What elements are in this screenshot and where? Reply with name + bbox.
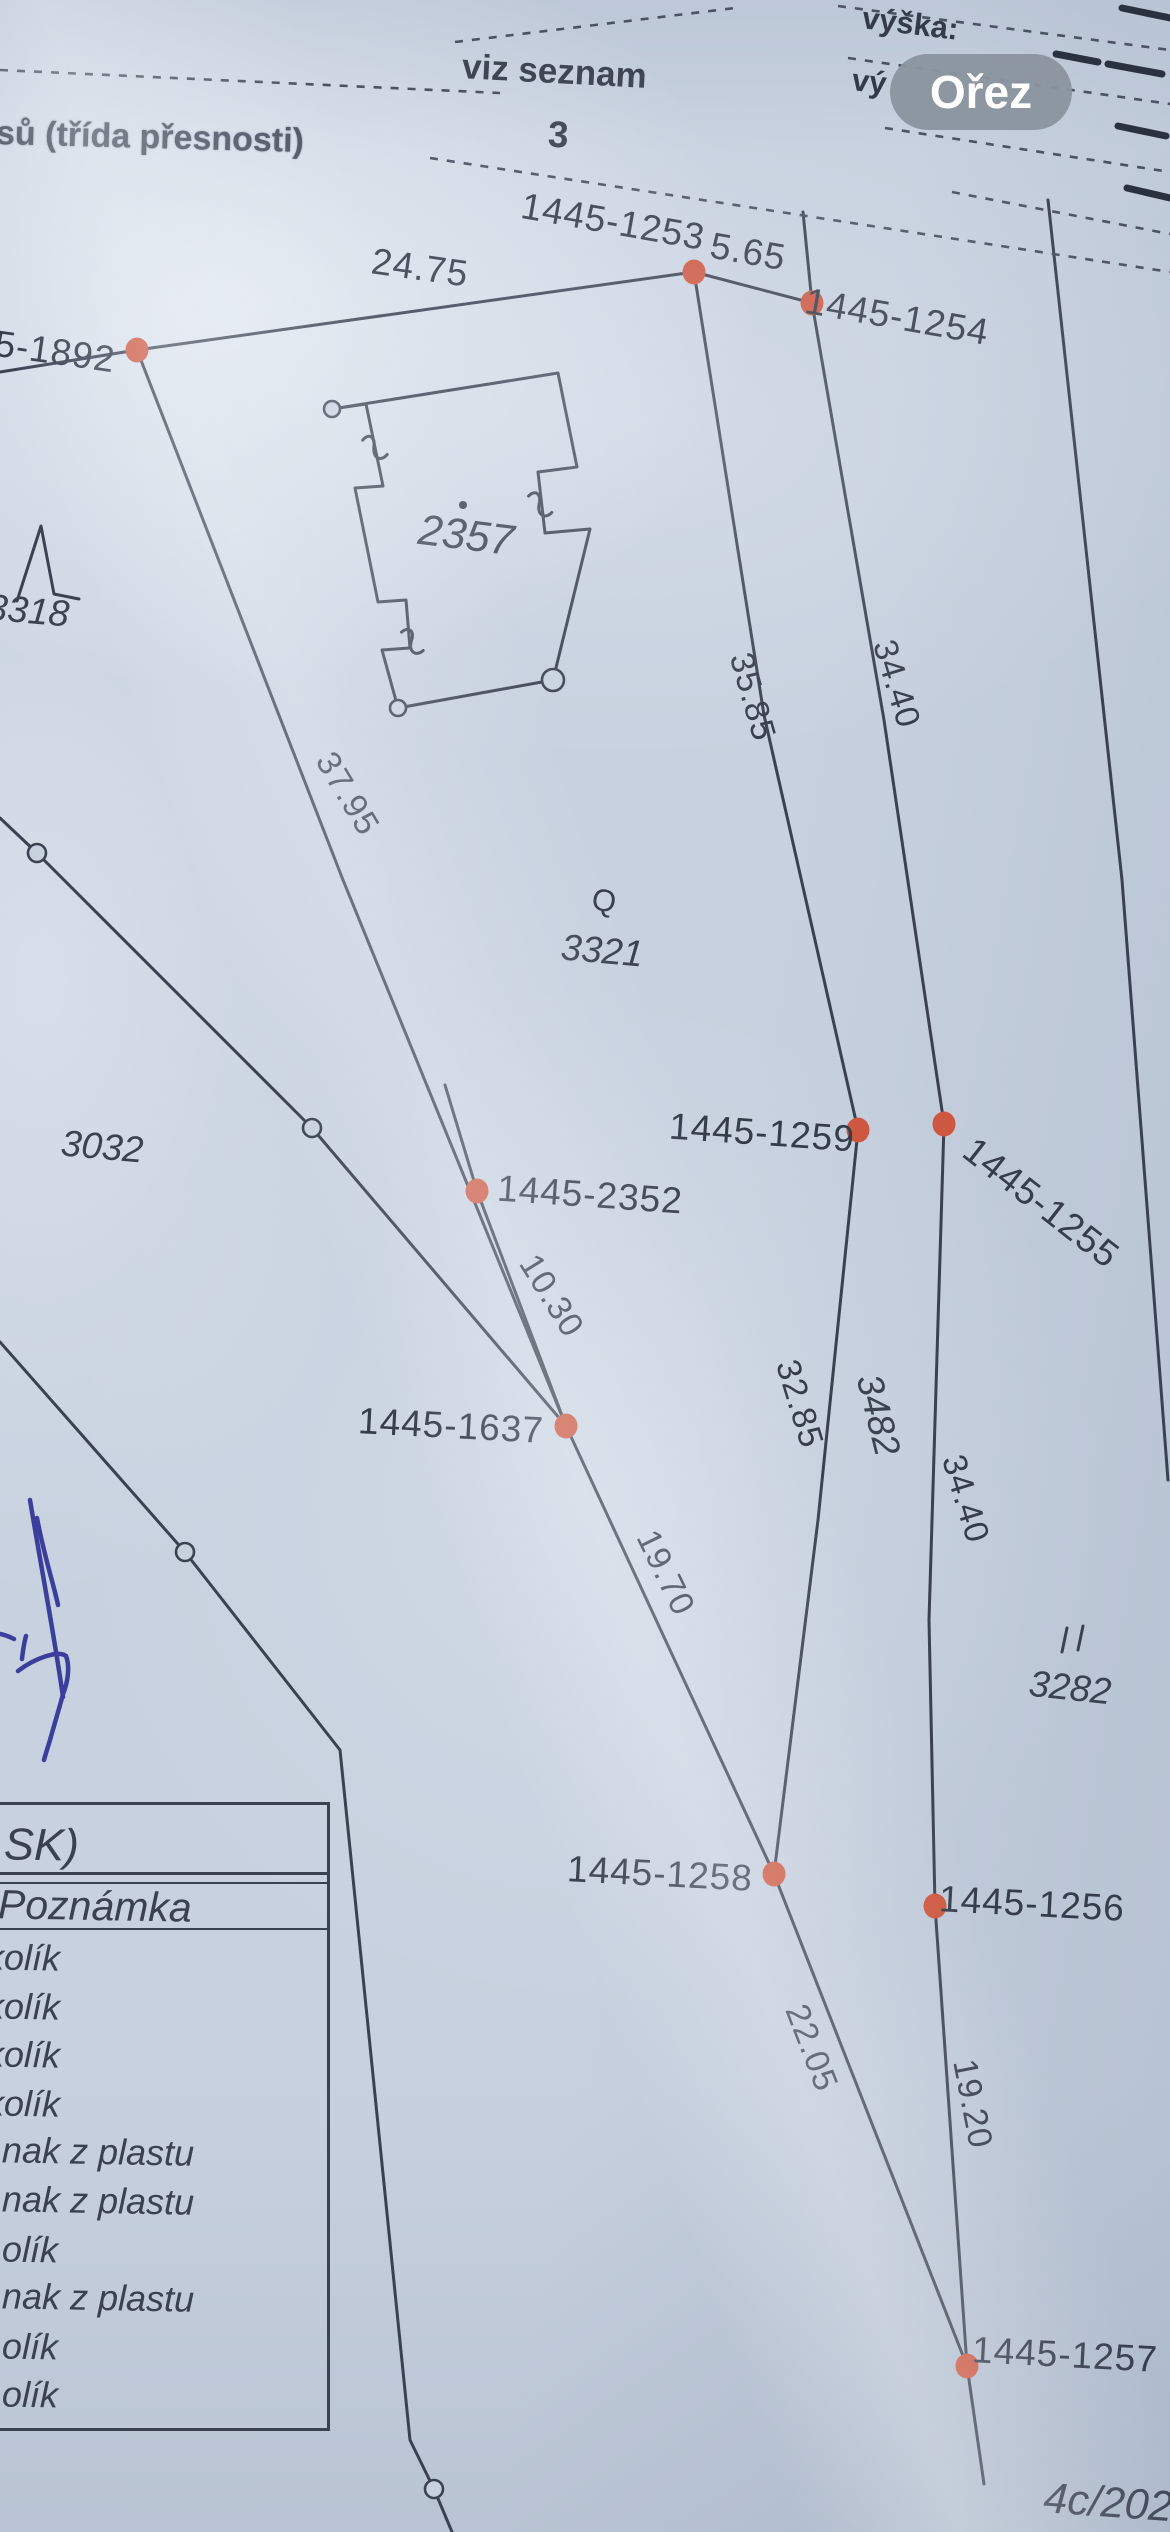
map-label: 1445-1257 <box>971 2329 1159 2381</box>
map-label: 5-1892 <box>0 323 118 381</box>
map-label: 37.95 <box>307 745 387 842</box>
list-number-text: 3 <box>547 113 570 156</box>
map-label: 3032 <box>59 1122 145 1171</box>
map-label: 24.75 <box>369 240 471 295</box>
map-label: 3282 <box>1027 1663 1113 1713</box>
table-row: nak z plastu <box>2 2276 195 2321</box>
map-label: 4c/2024 <box>1042 2474 1170 2532</box>
map-label: 1445-1253 <box>518 185 708 259</box>
map-label: 3318 <box>0 586 71 635</box>
photo-viewer-screen: 1445-12535.651445-12545-189224.751445-12… <box>0 0 1170 2532</box>
table-rule <box>0 1872 327 1875</box>
table-row: kolík <box>0 1985 60 2028</box>
legend-table: SK) Poznámka kolíkkolíkkolíkkolíknak z p… <box>0 1802 330 2431</box>
map-label: 19.70 <box>628 1524 703 1622</box>
map-label: 34.40 <box>933 1450 997 1548</box>
map-label: 22.05 <box>777 1999 846 2097</box>
map-label: 1445-1254 <box>802 280 992 354</box>
map-label: 1445-1258 <box>566 1848 754 1900</box>
table-row: olík <box>2 2374 59 2417</box>
map-label: 32.85 <box>767 1355 831 1453</box>
map-label: 19.20 <box>944 2056 999 2152</box>
table-row: olík <box>2 2228 59 2271</box>
height-label-partial-text: vý <box>850 62 889 102</box>
accuracy-note-text: sů (třída přesnosti) <box>0 114 304 161</box>
table-row: kolík <box>0 1936 60 1979</box>
table-row: kolík <box>0 2034 60 2077</box>
map-label: 3321 <box>559 926 645 975</box>
map-label: 1445-1256 <box>938 1878 1126 1930</box>
map-label: 34.40 <box>864 635 928 733</box>
table-header-fragment: SK) <box>4 1818 80 1871</box>
table-row: kolík <box>0 2082 60 2125</box>
map-label: 3482 <box>848 1370 909 1460</box>
map-label: 1445-2352 <box>496 1168 684 1223</box>
map-label: 35.85 <box>721 648 783 745</box>
crop-button[interactable]: Ořez <box>890 54 1072 130</box>
table-subheader: Poznámka <box>0 1881 192 1931</box>
map-label: 5.65 <box>707 225 789 280</box>
table-row: nak z plastu <box>2 2178 195 2223</box>
table-row: nak z plastu <box>2 2130 195 2175</box>
map-label: 1445-1259 <box>668 1106 856 1161</box>
map-label: 1445-1637 <box>357 1400 545 1452</box>
map-label: 2357 <box>416 506 517 566</box>
map-label: 1445-1255 <box>955 1129 1127 1277</box>
map-label: 10.30 <box>511 1247 592 1344</box>
table-row: olík <box>2 2325 59 2368</box>
map-label: Q <box>589 881 619 921</box>
